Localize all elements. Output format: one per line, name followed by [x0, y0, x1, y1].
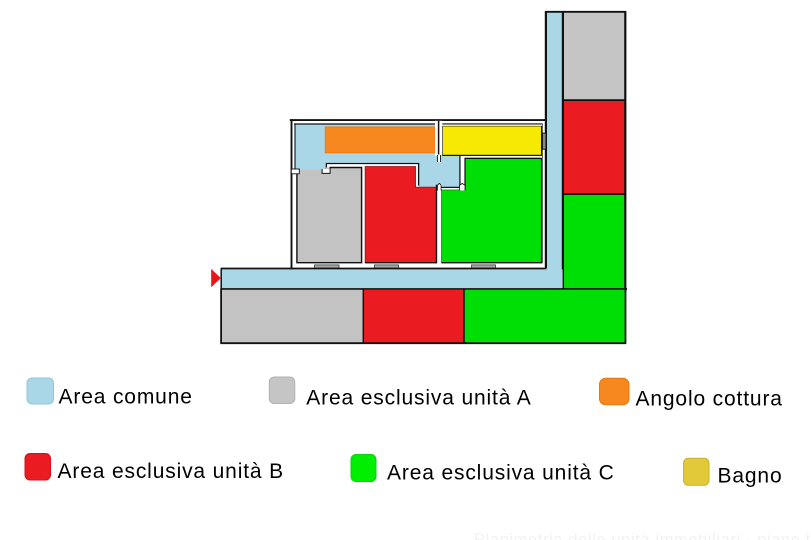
svg-text:Area comune: Area comune: [59, 386, 193, 409]
svg-text:Angolo cottura: Angolo cottura: [636, 387, 783, 410]
svg-text:Bagno: Bagno: [718, 465, 783, 488]
svg-text:Area esclusiva unità C: Area esclusiva unità C: [387, 461, 615, 484]
svg-text:Area esclusiva unità B: Area esclusiva unità B: [58, 460, 284, 483]
svg-text:Planimetria delle unità immobi: Planimetria delle unità immobiliari - pi…: [474, 531, 811, 540]
svg-text:Area esclusiva unità A: Area esclusiva unità A: [306, 387, 531, 410]
